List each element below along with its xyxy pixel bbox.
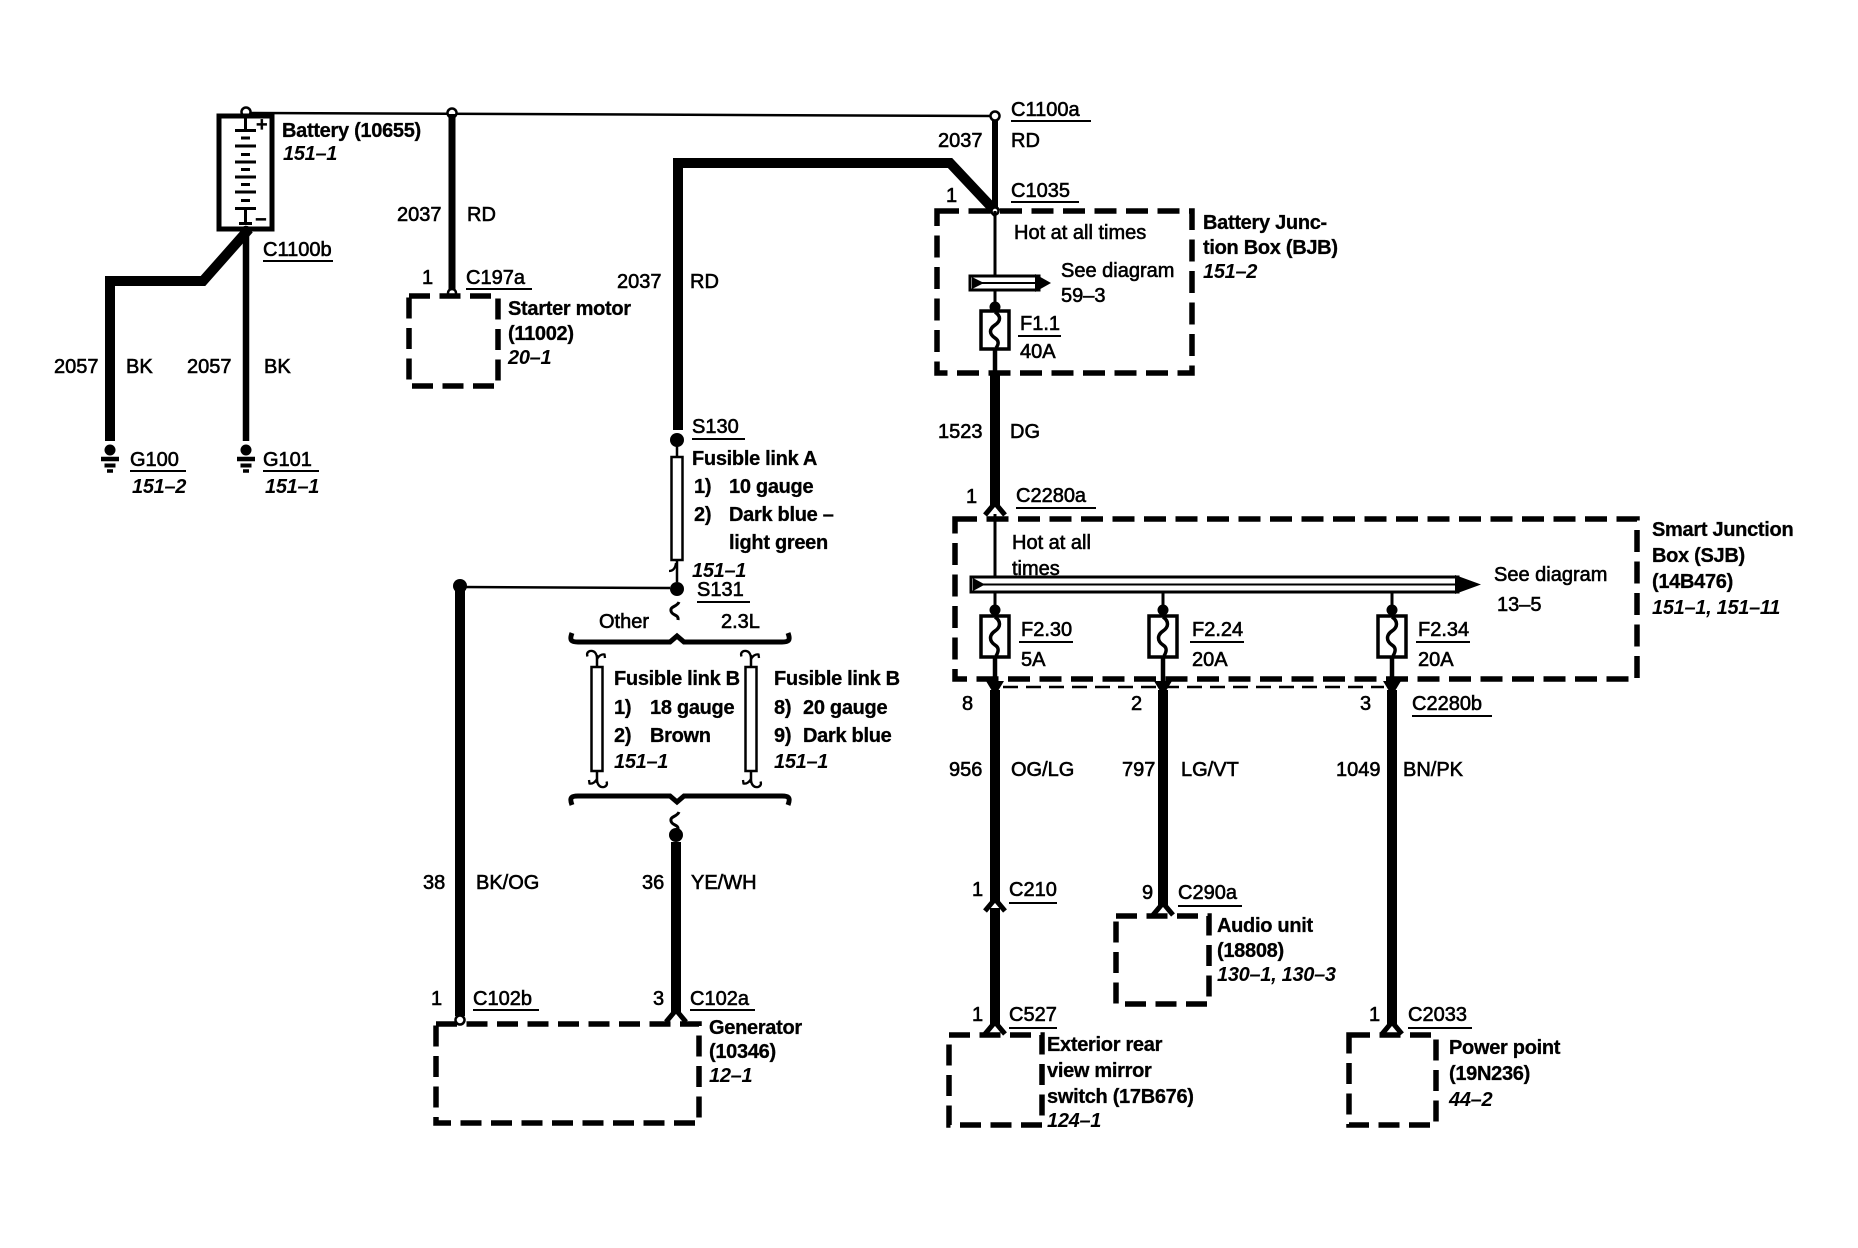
svg-text:BK/OG: BK/OG	[476, 872, 539, 894]
svg-text:See diagram: See diagram	[1494, 564, 1607, 586]
svg-text:1: 1	[946, 185, 957, 207]
svg-text:44–2: 44–2	[1448, 1089, 1492, 1111]
svg-text:1: 1	[1369, 1004, 1380, 1026]
svg-text:S131: S131	[697, 579, 744, 601]
svg-text:151–1: 151–1	[774, 751, 828, 773]
svg-text:Generator: Generator	[709, 1017, 802, 1039]
svg-text:RD: RD	[690, 271, 719, 293]
svg-text:light green: light green	[729, 532, 828, 554]
svg-text:Audio unit: Audio unit	[1217, 915, 1313, 937]
svg-text:1): 1)	[694, 476, 711, 498]
svg-text:956: 956	[949, 759, 982, 781]
svg-text:130–1, 130–3: 130–1, 130–3	[1217, 964, 1336, 986]
svg-text:8): 8)	[774, 697, 791, 719]
svg-text:Box (SJB): Box (SJB)	[1652, 545, 1745, 567]
svg-text:switch (17B676): switch (17B676)	[1047, 1086, 1194, 1108]
svg-text:Dark blue –: Dark blue –	[729, 504, 834, 526]
svg-text:2: 2	[1131, 693, 1142, 715]
svg-text:G101: G101	[263, 449, 312, 471]
svg-text:Starter motor: Starter motor	[508, 298, 631, 320]
svg-text:1): 1)	[614, 697, 631, 719]
svg-text:DG: DG	[1010, 421, 1040, 443]
svg-text:See diagram: See diagram	[1061, 260, 1174, 282]
svg-text:36: 36	[642, 872, 664, 894]
svg-text:F1.1: F1.1	[1020, 313, 1060, 335]
svg-text:151–1, 151–11: 151–1, 151–11	[1652, 597, 1780, 619]
svg-text:2037: 2037	[617, 271, 662, 293]
svg-text:2037: 2037	[938, 130, 983, 152]
svg-text:1: 1	[431, 988, 442, 1010]
svg-text:9): 9)	[774, 725, 791, 747]
svg-text:Fusible link A: Fusible link A	[692, 448, 817, 470]
svg-text:C527: C527	[1009, 1004, 1057, 1026]
svg-text:20–1: 20–1	[507, 347, 551, 369]
svg-text:OG/LG: OG/LG	[1011, 759, 1074, 781]
svg-text:2057: 2057	[187, 356, 232, 378]
svg-text:C2280a: C2280a	[1016, 485, 1087, 507]
svg-text:F2.24: F2.24	[1192, 619, 1243, 641]
svg-text:124–1: 124–1	[1047, 1110, 1101, 1132]
svg-text:S130: S130	[692, 416, 739, 438]
svg-text:C210: C210	[1009, 879, 1057, 901]
svg-text:BN/PK: BN/PK	[1403, 759, 1464, 781]
svg-text:40A: 40A	[1020, 341, 1056, 363]
svg-text:Battery Junc-: Battery Junc-	[1203, 212, 1327, 234]
svg-text:Smart Junction: Smart Junction	[1652, 519, 1793, 541]
svg-text:2): 2)	[694, 504, 711, 526]
svg-text:+: +	[256, 114, 267, 136]
svg-text:Fusible link B: Fusible link B	[774, 668, 900, 690]
svg-text:1523: 1523	[938, 421, 983, 443]
svg-text:10 gauge: 10 gauge	[729, 476, 813, 498]
svg-text:151–2: 151–2	[1203, 261, 1257, 283]
svg-text:151–2: 151–2	[132, 476, 186, 498]
svg-text:Power point: Power point	[1449, 1037, 1561, 1059]
svg-text:Battery (10655): Battery (10655)	[282, 120, 421, 142]
svg-text:59–3: 59–3	[1061, 285, 1106, 307]
svg-text:−: −	[255, 209, 266, 231]
svg-text:LG/VT: LG/VT	[1181, 759, 1239, 781]
svg-text:Other: Other	[599, 611, 649, 633]
svg-text:RD: RD	[467, 204, 496, 226]
svg-text:1: 1	[966, 486, 977, 508]
svg-text:20 gauge: 20 gauge	[803, 697, 887, 719]
svg-text:(11002): (11002)	[508, 323, 574, 345]
svg-text:38: 38	[423, 872, 445, 894]
svg-text:Hot at all times: Hot at all times	[1014, 222, 1146, 244]
svg-text:12–1: 12–1	[709, 1065, 752, 1087]
svg-text:C1100a: C1100a	[1011, 99, 1080, 121]
svg-text:20A: 20A	[1418, 649, 1454, 671]
svg-text:YE/WH: YE/WH	[691, 872, 757, 894]
svg-text:C1100b: C1100b	[263, 239, 332, 261]
svg-text:C197a: C197a	[466, 267, 526, 289]
svg-text:151–1: 151–1	[614, 751, 668, 773]
svg-text:1: 1	[972, 1004, 983, 1026]
svg-text:1: 1	[422, 267, 433, 289]
svg-text:Dark blue: Dark blue	[803, 725, 892, 747]
svg-text:3: 3	[653, 988, 664, 1010]
svg-text:Hot at all: Hot at all	[1012, 532, 1091, 554]
svg-text:Exterior rear: Exterior rear	[1047, 1034, 1163, 1056]
svg-text:Brown: Brown	[650, 725, 711, 747]
svg-text:tion Box (BJB): tion Box (BJB)	[1203, 237, 1338, 259]
svg-text:F2.30: F2.30	[1021, 619, 1072, 641]
svg-text:13–5: 13–5	[1497, 594, 1542, 616]
svg-text:151–1: 151–1	[283, 143, 337, 165]
svg-text:C2280b: C2280b	[1412, 693, 1482, 715]
svg-text:3: 3	[1360, 693, 1371, 715]
svg-text:C290a: C290a	[1178, 882, 1238, 904]
svg-text:20A: 20A	[1192, 649, 1228, 671]
svg-text:5A: 5A	[1021, 649, 1046, 671]
svg-text:RD: RD	[1011, 130, 1040, 152]
svg-text:C102a: C102a	[690, 988, 750, 1010]
svg-text:797: 797	[1122, 759, 1155, 781]
svg-text:2): 2)	[614, 725, 631, 747]
svg-text:151–1: 151–1	[265, 476, 319, 498]
svg-text:F2.34: F2.34	[1418, 619, 1469, 641]
svg-text:view mirror: view mirror	[1047, 1060, 1152, 1082]
svg-text:2037: 2037	[397, 204, 442, 226]
svg-text:C102b: C102b	[473, 988, 532, 1010]
svg-text:G100: G100	[130, 449, 179, 471]
svg-text:(18808): (18808)	[1217, 940, 1284, 962]
svg-text:18 gauge: 18 gauge	[650, 697, 734, 719]
svg-text:C2033: C2033	[1408, 1004, 1467, 1026]
svg-text:2057: 2057	[54, 356, 99, 378]
svg-text:2.3L: 2.3L	[721, 611, 760, 633]
svg-text:(19N236): (19N236)	[1449, 1063, 1530, 1085]
svg-text:BK: BK	[264, 356, 291, 378]
svg-text:(14B476): (14B476)	[1652, 571, 1733, 593]
svg-text:(10346): (10346)	[709, 1041, 776, 1063]
svg-text:BK: BK	[126, 356, 153, 378]
svg-text:1: 1	[972, 879, 983, 901]
svg-text:8: 8	[962, 693, 973, 715]
svg-text:1049: 1049	[1336, 759, 1381, 781]
svg-text:9: 9	[1142, 882, 1153, 904]
svg-text:Fusible link B: Fusible link B	[614, 668, 740, 690]
svg-text:C1035: C1035	[1011, 180, 1070, 202]
